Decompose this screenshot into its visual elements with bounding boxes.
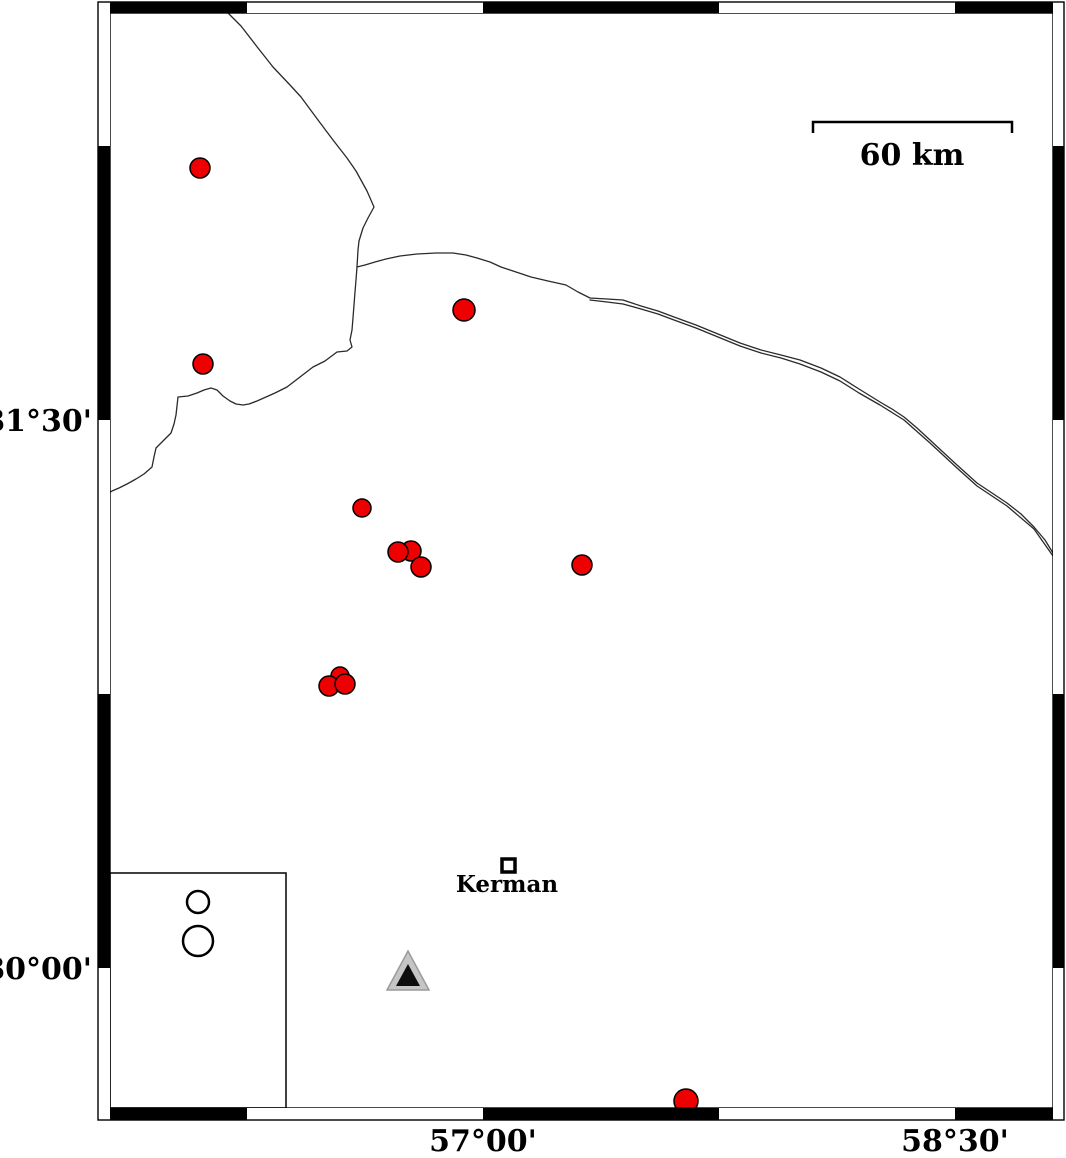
frame-segment-right	[1053, 146, 1064, 420]
scalebar-bracket	[813, 122, 1012, 133]
epicenter-marker	[193, 354, 213, 374]
epicenter-marker	[353, 499, 371, 517]
lat-tick-label-3000: 30°00'	[0, 952, 92, 987]
epicenter-marker	[335, 674, 355, 694]
lon-tick-label-5700: 57°00'	[429, 1124, 537, 1158]
scalebar-label: 60 km	[860, 138, 965, 173]
frame-segment-left	[98, 694, 110, 968]
epicenter-marker	[388, 542, 408, 562]
boundary-line-southwest	[109, 267, 357, 493]
station-triangle	[387, 951, 429, 990]
scalebar: 60 km	[813, 122, 1012, 173]
lon-tick-label-5830: 58°30'	[901, 1124, 1009, 1158]
frame-segment-top	[483, 2, 719, 13]
legend-magnitude-circle	[187, 891, 209, 913]
legend-magnitude-circle	[183, 926, 213, 956]
boundary-line-east	[357, 253, 1053, 553]
legend-inset-box	[110, 873, 286, 1108]
epicenter-marker	[453, 299, 475, 321]
frame-segment-top	[955, 2, 1053, 13]
epicenter-marker	[190, 158, 210, 178]
boundary-line-east-second-strand	[590, 300, 1053, 556]
boundary-line-north	[228, 13, 374, 267]
lat-tick-label-3130: 31°30'	[0, 404, 92, 439]
seismicity-map-canvas: 60 km 31°30' 30°00' 57°00' 58°30' Kerman	[0, 0, 1066, 1158]
frame-segment-left	[98, 146, 110, 420]
map-boundary-lines	[109, 13, 1053, 556]
frame-segment-bottom	[110, 1108, 247, 1120]
frame-segment-top	[110, 2, 247, 13]
frame-segment-right	[1053, 694, 1064, 968]
frame-segment-bottom	[483, 1108, 719, 1120]
epicenter-marker	[411, 557, 431, 577]
frame-segment-bottom	[955, 1108, 1053, 1120]
epicenter-marker	[572, 555, 592, 575]
city-label-kerman: Kerman	[456, 871, 558, 898]
